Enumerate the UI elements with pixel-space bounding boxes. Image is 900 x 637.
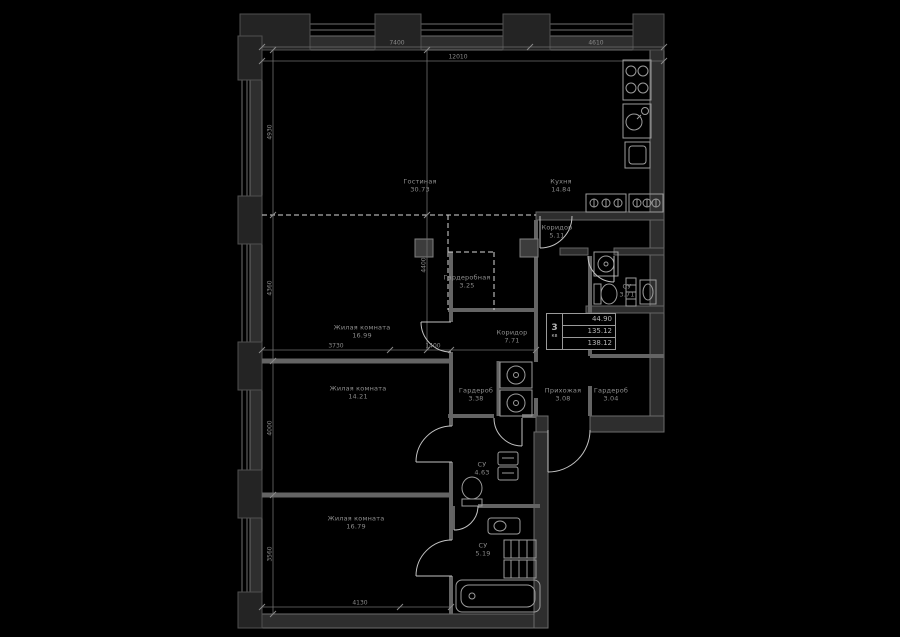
apartment-stat-block: 3 кв 44.90 135.12 138.12: [546, 313, 616, 350]
door-arcs: [416, 216, 614, 576]
toilet-icon: [462, 477, 482, 506]
room-count: 3: [551, 324, 557, 333]
toilet-icon: [594, 284, 617, 304]
kitchen-sink-icon: [623, 104, 651, 138]
room-label-bathroom1: СУ 3.71: [619, 283, 634, 300]
room-label-living: Гостиная 30.73: [403, 178, 436, 195]
bathroom2-fixtures: [462, 452, 518, 506]
dim-middle-left: 3730: [328, 343, 343, 350]
room-label-wardrobe3: Гардероб 3.04: [594, 387, 628, 404]
room-label-wardrobe2: Гардероб 3.38: [459, 387, 493, 404]
bathroom3-door-arc: [454, 506, 478, 530]
dim-left-lower-mid: 4000: [267, 420, 274, 435]
bedroom2-door-arc: [416, 426, 452, 462]
room-label-hallway: Прихожая 3.08: [545, 387, 581, 404]
bedroom3-door-arc: [416, 540, 452, 576]
wall-cabinet-icon: [498, 452, 518, 480]
bathroom3-fixtures: [456, 518, 540, 612]
bathtub-icon: [456, 580, 540, 612]
dim-top-total: 12010: [448, 54, 467, 61]
room-label-wardrobe1: Гардеробная 3.25: [443, 274, 490, 291]
room-label-corridor2: Коридор 7.71: [497, 329, 528, 346]
dim-center-vertical: 4400: [421, 257, 428, 272]
room-label-bedroom2: Жилая комната 14.21: [330, 385, 387, 402]
stat-living-area: 44.90: [563, 314, 615, 326]
dim-top-right: 4610: [588, 40, 603, 47]
vent-grille-icon: [586, 194, 626, 212]
washer-icon: [500, 362, 532, 388]
dim-left-bottom: 3560: [267, 546, 274, 561]
room-label-kitchen: Кухня 14.84: [550, 178, 571, 195]
room-count-badge: 3 кв: [547, 314, 563, 349]
bathroom2-door-arc: [494, 418, 522, 446]
oven-icon: [625, 142, 650, 168]
room-label-bedroom3: Жилая комната 16.79: [328, 515, 385, 532]
room-label-bathroom3: СУ 5.19: [475, 542, 490, 559]
room-label-bathroom2: СУ 4.63: [474, 461, 489, 478]
stove-icon: [623, 60, 651, 100]
dashed-boundaries: [262, 215, 536, 310]
interior-walls: [262, 212, 664, 614]
sink-counter-icon: [488, 518, 520, 534]
room-label-bedroom1: Жилая комната 16.99: [334, 324, 391, 341]
radiator-grille-icon: [504, 560, 536, 578]
dim-left-top: 4930: [267, 124, 274, 139]
room-count-sub: кв: [552, 333, 558, 339]
dim-top-left: 7400: [389, 40, 404, 47]
room-label-corridor1: Коридор 5.11: [542, 224, 573, 241]
dim-middle-center: 1400: [425, 343, 440, 350]
dim-bottom: 4130: [352, 600, 367, 607]
radiator-grille-icon: [504, 540, 536, 558]
dim-left-upper-mid: 4360: [267, 280, 274, 295]
entrance-door-arc: [548, 430, 590, 472]
floorplan-drawing: [0, 0, 900, 637]
area-stats: 44.90 135.12 138.12: [563, 314, 615, 349]
stat-area: 135.12: [563, 326, 615, 338]
laundry-fixtures: [500, 362, 532, 416]
floorplan-page: Гостиная 30.73 Кухня 14.84 Коридор 5.11 …: [0, 0, 900, 637]
dryer-icon: [500, 390, 532, 416]
stat-total-area: 138.12: [563, 338, 615, 349]
columns: [415, 239, 538, 257]
